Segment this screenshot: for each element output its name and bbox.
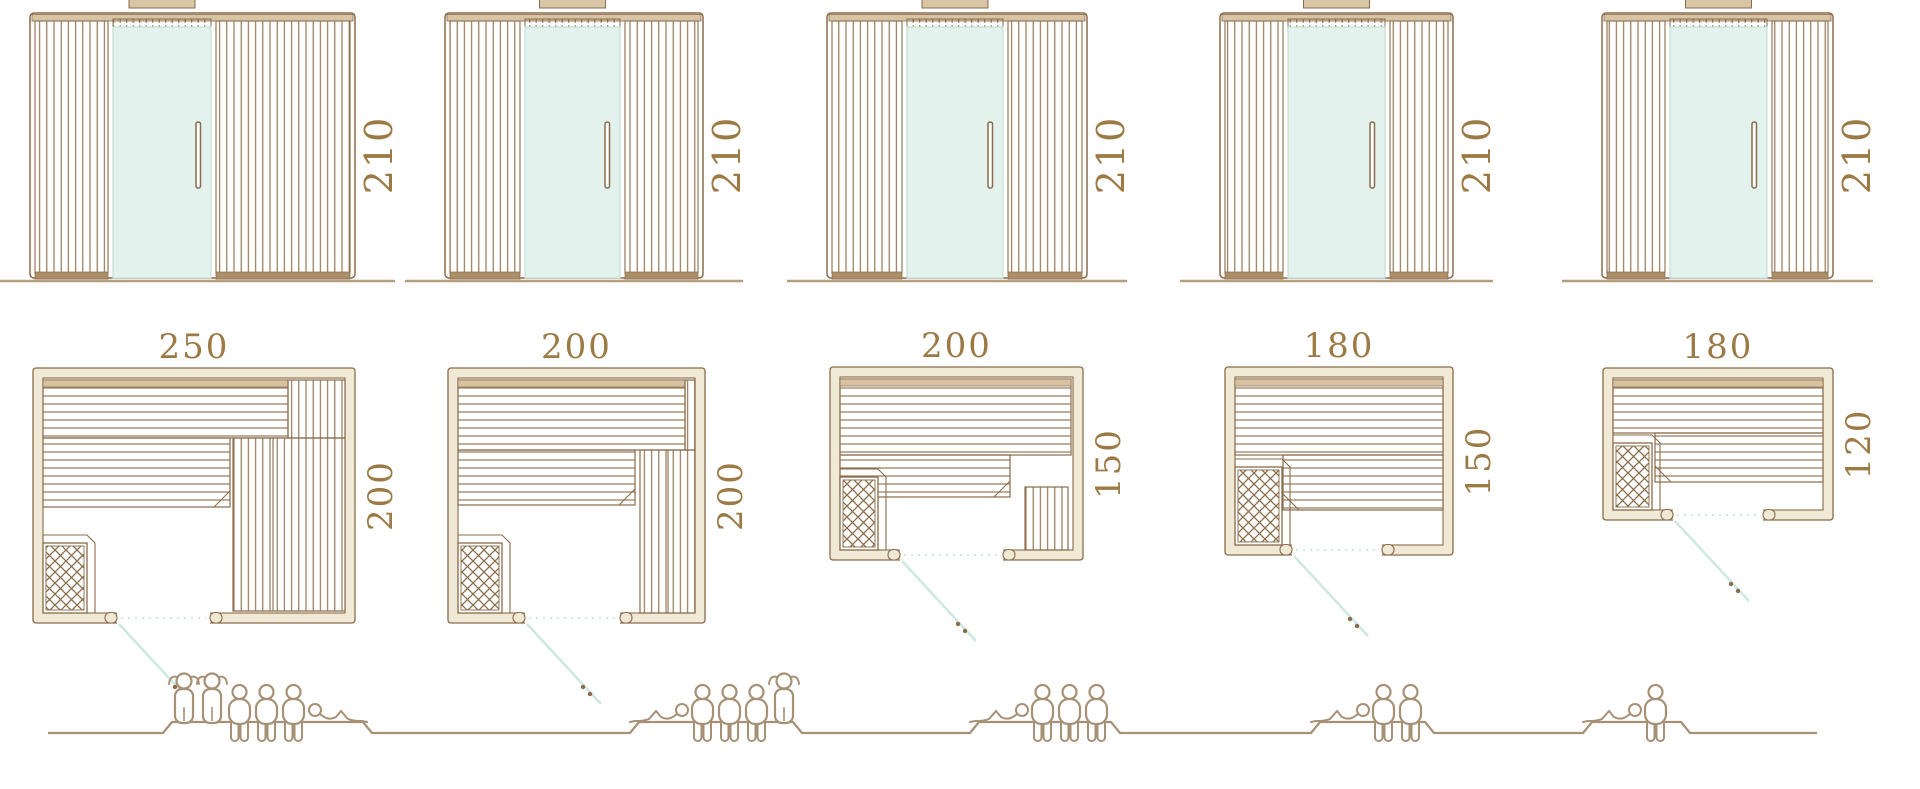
plan-width-label: 180 <box>1304 326 1375 366</box>
lying-person-head <box>1629 704 1641 716</box>
lower-bench <box>1283 455 1443 510</box>
sauna-elevation-2: 210 <box>405 0 749 281</box>
lower-bench <box>1655 433 1823 482</box>
lying-person-icon <box>970 704 1028 722</box>
door-jamb <box>1280 545 1292 556</box>
wall-slats <box>450 21 520 273</box>
door-jamb <box>210 613 222 624</box>
sitting-person-head <box>1404 685 1418 699</box>
sauna-elevation-1: 210 <box>0 0 401 281</box>
capacity-group-5 <box>1583 685 1666 741</box>
door-handle <box>1370 122 1375 188</box>
sitting-person-body <box>692 699 713 724</box>
bench-backrest <box>1613 380 1823 387</box>
door-handle-dot <box>1729 582 1733 586</box>
wall-slats <box>1607 21 1665 273</box>
plan-depth-label: 120 <box>1839 409 1879 480</box>
door-jamb <box>1763 510 1775 521</box>
standing-person-icon <box>169 674 199 724</box>
sauna-size-diagram: 210210210210210 250200200200200150180150… <box>0 0 1920 789</box>
sitting-person-head <box>1377 685 1391 699</box>
sitting-person-body <box>719 699 740 724</box>
sauna-plan-5: 180120 <box>1603 327 1879 601</box>
sitting-person-icon <box>692 685 713 741</box>
bench-backrest <box>43 380 288 387</box>
sauna-elevation-3: 210 <box>787 0 1133 281</box>
wall-slats <box>625 21 698 273</box>
base-skirt <box>1008 272 1082 279</box>
lying-person-icon <box>630 704 688 722</box>
lying-person-body <box>970 711 1017 722</box>
door-handle-dot <box>588 692 592 696</box>
door-jamb <box>105 613 117 624</box>
base-skirt <box>1607 272 1665 279</box>
transom-vent <box>113 19 211 27</box>
standing-person-head <box>777 674 792 689</box>
roof-vent-cap <box>129 0 195 8</box>
sitting-person-icon <box>1059 685 1080 741</box>
wall-slats <box>1225 21 1283 273</box>
heater-grid <box>1238 470 1279 542</box>
height-dimension-label: 210 <box>1455 116 1499 195</box>
wall-slats <box>1390 21 1448 273</box>
sitting-person-icon <box>283 685 304 741</box>
sitting-person-icon <box>1400 685 1421 741</box>
plans-row: 250200200200200150180150180120 <box>33 326 1879 704</box>
diagram-canvas: 210210210210210 250200200200200150180150… <box>0 0 1920 789</box>
sauna-elevation-5: 210 <box>1562 0 1879 281</box>
heater-grid <box>1616 446 1649 507</box>
sitting-person-body <box>229 699 250 724</box>
lying-person-head <box>676 704 688 716</box>
height-dimension-label: 210 <box>1089 116 1133 195</box>
plan-width-label: 250 <box>159 327 230 367</box>
door-handle-dot <box>963 629 967 633</box>
capacity-group-3 <box>970 685 1107 741</box>
sitting-person-icon <box>746 685 767 741</box>
upper-bench <box>1613 380 1823 433</box>
base-skirt <box>1225 272 1283 279</box>
door-opening <box>900 549 1003 564</box>
base-skirt <box>1390 272 1448 279</box>
elevations-row: 210210210210210 <box>0 0 1879 281</box>
wall-slats <box>832 21 902 273</box>
sauna-elevation-4: 210 <box>1180 0 1499 281</box>
transom-vent <box>525 19 620 27</box>
lying-person-body <box>320 711 367 722</box>
sitting-person-icon <box>719 685 740 741</box>
sitting-person-head <box>750 685 764 699</box>
sitting-person-head <box>233 685 247 699</box>
door-jamb <box>888 550 900 561</box>
sitting-person-body <box>1373 699 1394 724</box>
lying-person-icon <box>1583 704 1641 722</box>
sitting-person-icon <box>1645 685 1666 741</box>
sitting-person-head <box>696 685 710 699</box>
side-bench <box>685 380 695 450</box>
base-skirt <box>216 272 350 279</box>
sauna-plan-4: 180150 <box>1225 326 1499 636</box>
base-skirt <box>1772 272 1828 279</box>
wall-slats <box>1008 21 1082 273</box>
plan-width-label: 200 <box>541 327 612 367</box>
bench-backrest <box>840 379 1071 386</box>
door-handle-dot <box>1355 624 1359 628</box>
lying-person-head <box>309 704 321 716</box>
transom-vent <box>907 19 1003 27</box>
plan-depth-label: 150 <box>1089 428 1129 499</box>
sitting-person-body <box>1645 699 1666 724</box>
side-bench <box>1025 487 1068 550</box>
standing-person-icon <box>197 674 227 724</box>
sitting-person-head <box>1090 685 1104 699</box>
plan-width-label: 200 <box>921 326 992 366</box>
lying-person-icon <box>309 704 367 722</box>
capacity-baseline <box>48 722 1817 733</box>
capacity-group-2 <box>630 674 799 742</box>
door-jamb <box>513 613 525 624</box>
capacity-group-4 <box>1311 685 1421 741</box>
plan-depth-label: 150 <box>1459 426 1499 497</box>
lower-bench <box>43 438 230 507</box>
lower-bench <box>458 450 635 505</box>
bench-backrest <box>1235 379 1443 386</box>
lying-person-head <box>1357 704 1369 716</box>
lying-person-head <box>1016 704 1028 716</box>
roof-vent-cap <box>540 0 606 8</box>
base-skirt <box>35 272 108 279</box>
plan-width-label: 180 <box>1683 327 1754 367</box>
base-skirt <box>832 272 902 279</box>
roof-vent-cap <box>922 0 988 8</box>
sitting-person-head <box>1036 685 1050 699</box>
sitting-person-head <box>260 685 274 699</box>
heater-grid <box>461 546 499 610</box>
capacity-row <box>48 674 1817 742</box>
sitting-person-icon <box>1373 685 1394 741</box>
door-opening <box>525 612 620 627</box>
sauna-plan-3: 200150 <box>830 326 1129 641</box>
standing-person-icon <box>769 674 799 724</box>
base-skirt <box>450 272 520 279</box>
side-bench <box>288 380 345 438</box>
standing-person-head <box>205 674 220 689</box>
standing-person-head <box>177 674 192 689</box>
door-opening <box>117 612 210 627</box>
door-handle-dot <box>173 685 177 689</box>
wall-slats <box>216 21 350 273</box>
sitting-person-icon <box>1032 685 1053 741</box>
lying-person-icon <box>1311 704 1369 722</box>
base-skirt <box>625 272 698 279</box>
sitting-person-body <box>1086 699 1107 724</box>
transom-vent <box>1288 19 1385 27</box>
door-handle-dot <box>581 685 585 689</box>
upper-bench <box>1235 379 1443 455</box>
heater-grid <box>843 480 875 547</box>
door-handle <box>988 122 993 188</box>
roof-vent-cap <box>1304 0 1370 8</box>
bench-backrest <box>458 380 685 387</box>
sauna-plan-1: 250200 <box>33 327 401 704</box>
door-opening <box>1673 509 1763 524</box>
height-dimension-label: 210 <box>705 116 749 195</box>
door-jamb <box>620 613 632 624</box>
sitting-person-head <box>723 685 737 699</box>
door-jamb <box>1661 510 1673 521</box>
side-bench <box>233 438 345 611</box>
sitting-person-body <box>256 699 277 724</box>
door-handle-dot <box>1736 589 1740 593</box>
height-dimension-label: 210 <box>1835 116 1879 195</box>
sitting-person-head <box>1649 685 1663 699</box>
sitting-person-body <box>746 699 767 724</box>
door-handle-dot <box>956 622 960 626</box>
lying-person-body <box>1583 711 1630 722</box>
door-handle <box>1752 122 1757 188</box>
heater-grid <box>46 546 84 610</box>
capacity-group-1 <box>169 674 367 742</box>
wall-slats <box>1772 21 1828 273</box>
roof-vent-cap <box>1686 0 1752 8</box>
lying-person-body <box>630 711 677 722</box>
upper-bench <box>43 380 288 438</box>
height-dimension-label: 210 <box>357 116 401 195</box>
sitting-person-head <box>287 685 301 699</box>
wall-slats <box>35 21 108 273</box>
sitting-person-body <box>283 699 304 724</box>
door-handle-dot <box>1348 617 1352 621</box>
door-jamb <box>1003 550 1015 561</box>
plan-depth-label: 200 <box>361 460 401 531</box>
sitting-person-body <box>1032 699 1053 724</box>
door-handle <box>605 122 610 188</box>
sitting-person-icon <box>1086 685 1107 741</box>
sitting-person-head <box>1063 685 1077 699</box>
door-opening <box>1292 544 1382 559</box>
door-handle <box>196 122 201 188</box>
sitting-person-body <box>1400 699 1421 724</box>
sitting-person-body <box>1059 699 1080 724</box>
sitting-person-icon <box>229 685 250 741</box>
transom-vent <box>1670 19 1767 27</box>
upper-bench <box>840 379 1071 455</box>
sauna-plan-2: 200200 <box>448 327 751 704</box>
door-jamb <box>1382 545 1394 556</box>
sitting-person-icon <box>256 685 277 741</box>
lying-person-body <box>1311 711 1358 722</box>
plan-depth-label: 200 <box>711 460 751 531</box>
upper-bench <box>458 380 685 450</box>
